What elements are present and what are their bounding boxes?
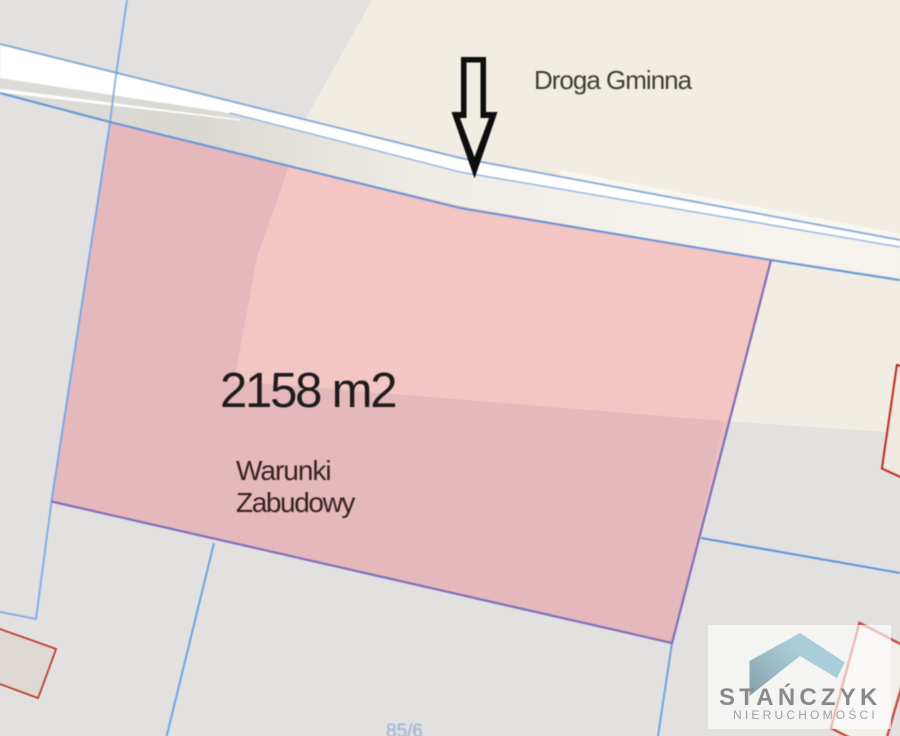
svg-text:Warunki: Warunki <box>236 455 331 486</box>
svg-text:NIERUCHOMOŚCI: NIERUCHOMOŚCI <box>733 707 878 722</box>
svg-text:2158 m2: 2158 m2 <box>220 364 395 418</box>
svg-text:Droga Gminna: Droga Gminna <box>534 65 693 95</box>
svg-text:85/6: 85/6 <box>386 721 423 736</box>
svg-text:STAŃCZYK: STAŃCZYK <box>719 683 881 711</box>
svg-text:Zabudowy: Zabudowy <box>236 487 355 518</box>
